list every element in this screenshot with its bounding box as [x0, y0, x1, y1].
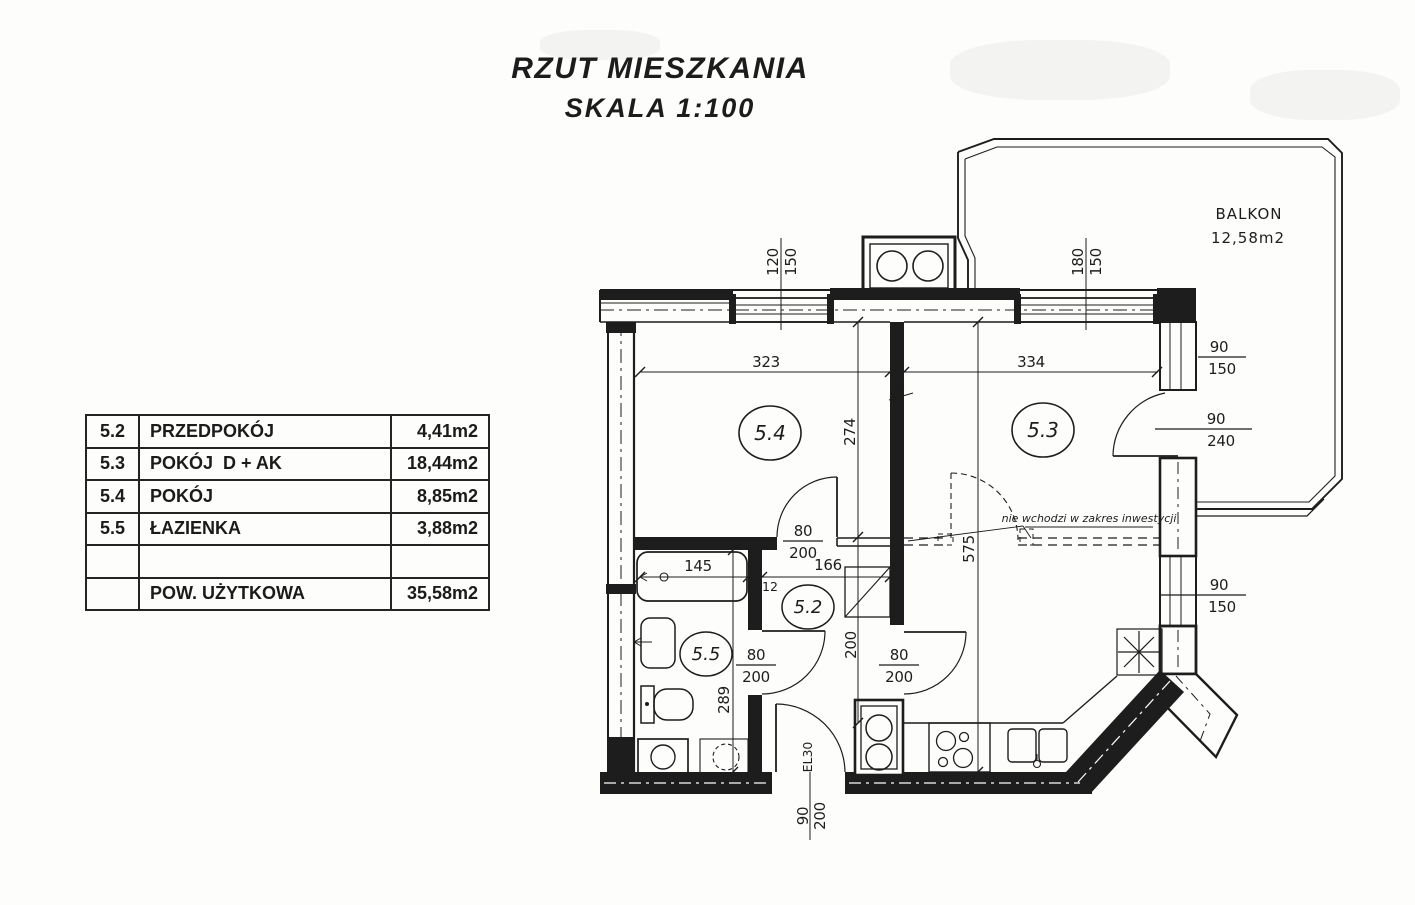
balcony-outline: [958, 139, 1342, 516]
planned-appliance-dashed: [700, 739, 748, 776]
dim-door-b-w: 80: [747, 646, 766, 664]
kitchen-sink: [1008, 729, 1067, 768]
room-number-54: 5.4: [754, 421, 786, 445]
dim-tub-length: 145: [684, 557, 712, 575]
dim-window-right-top-h: 150: [1208, 360, 1236, 378]
note-leader: [908, 526, 1153, 541]
dim-entry-h: 200: [811, 802, 829, 830]
dim-door-a-w: 80: [794, 522, 813, 540]
balcony-area-label: 12,58m2: [1211, 229, 1285, 247]
washing-machine: [638, 739, 688, 776]
investment-scope-note: nie wchodzi w zakres inwestycji: [1002, 512, 1177, 525]
dim-window-right-bottom-h: 150: [1208, 598, 1236, 616]
kitchen-counter: [903, 676, 1117, 723]
window-right-lower: [1160, 556, 1196, 626]
dim-door-c-w: 80: [890, 646, 909, 664]
dim-door-b-h: 200: [742, 668, 770, 686]
balcony-label: BALKON: [1216, 205, 1283, 223]
door-bathroom: [762, 631, 825, 694]
dim-room54-depth: 274: [841, 418, 859, 446]
floor-plan-drawing: BALKON 12,58m2: [0, 0, 1415, 905]
dim-entry-w: 90: [794, 807, 812, 826]
room-label-54: 5.4: [739, 406, 801, 460]
stove: [929, 723, 990, 772]
room-label-53: 5.3: [1012, 403, 1074, 457]
wardrobe-box: [845, 567, 890, 617]
room-label-55: 5.5: [680, 632, 732, 676]
dim-room54-width: 323: [752, 353, 780, 371]
dim-wall-12: 12: [762, 579, 778, 594]
washbasin: [634, 618, 675, 668]
vent-shaft-top: [863, 237, 955, 293]
dim-window-right-top-w: 90: [1210, 338, 1229, 356]
dim-door-c-h: 200: [885, 668, 913, 686]
dim-kitchen-depth: 200: [842, 631, 860, 659]
dim-balcony-door-h: 240: [1207, 432, 1235, 450]
dim-window-top-right-w: 180: [1069, 248, 1087, 276]
balcony-door: [1113, 393, 1178, 456]
corner-block-right: [1160, 626, 1196, 674]
dim-balcony-door-w: 90: [1207, 410, 1226, 428]
window-right-upper: [1160, 322, 1196, 390]
room-number-55: 5.5: [692, 644, 721, 665]
dim-window-top-right-h: 150: [1087, 248, 1105, 276]
vent-shaft-entry: [855, 700, 903, 775]
light-point-symbol: [1117, 629, 1162, 675]
dim-hall-width: 166: [814, 556, 842, 574]
left-party-wall: [606, 322, 636, 775]
window-top-right: [1014, 294, 1160, 324]
planned-partition-dashed: [904, 473, 1160, 545]
dim-window-top-left-h: 150: [782, 248, 800, 276]
entry-door-class-label: EL30: [800, 742, 815, 773]
dim-room53-depth: 575: [960, 535, 978, 563]
dim-bath-depth: 289: [715, 686, 733, 714]
top-exterior-wall: [600, 237, 1196, 324]
room-number-53: 5.3: [1027, 418, 1059, 442]
scanned-floor-plan-page: RZUT MIESZKANIA SKALA 1:100 5.2 PRZEDPOK…: [0, 0, 1415, 905]
door-kitchen: [904, 632, 966, 694]
toilet: [641, 686, 693, 723]
dim-window-top-left-w: 120: [764, 248, 782, 276]
wall-pier-right: [1160, 458, 1196, 556]
dim-room53-width: 334: [1017, 353, 1045, 371]
dim-wall-thickness: 8: [897, 380, 905, 395]
dim-door-a-h: 200: [789, 544, 817, 562]
room-label-52: 5.2: [782, 585, 834, 629]
room-number-52: 5.2: [794, 597, 823, 618]
dim-window-right-bottom-w: 90: [1210, 576, 1229, 594]
